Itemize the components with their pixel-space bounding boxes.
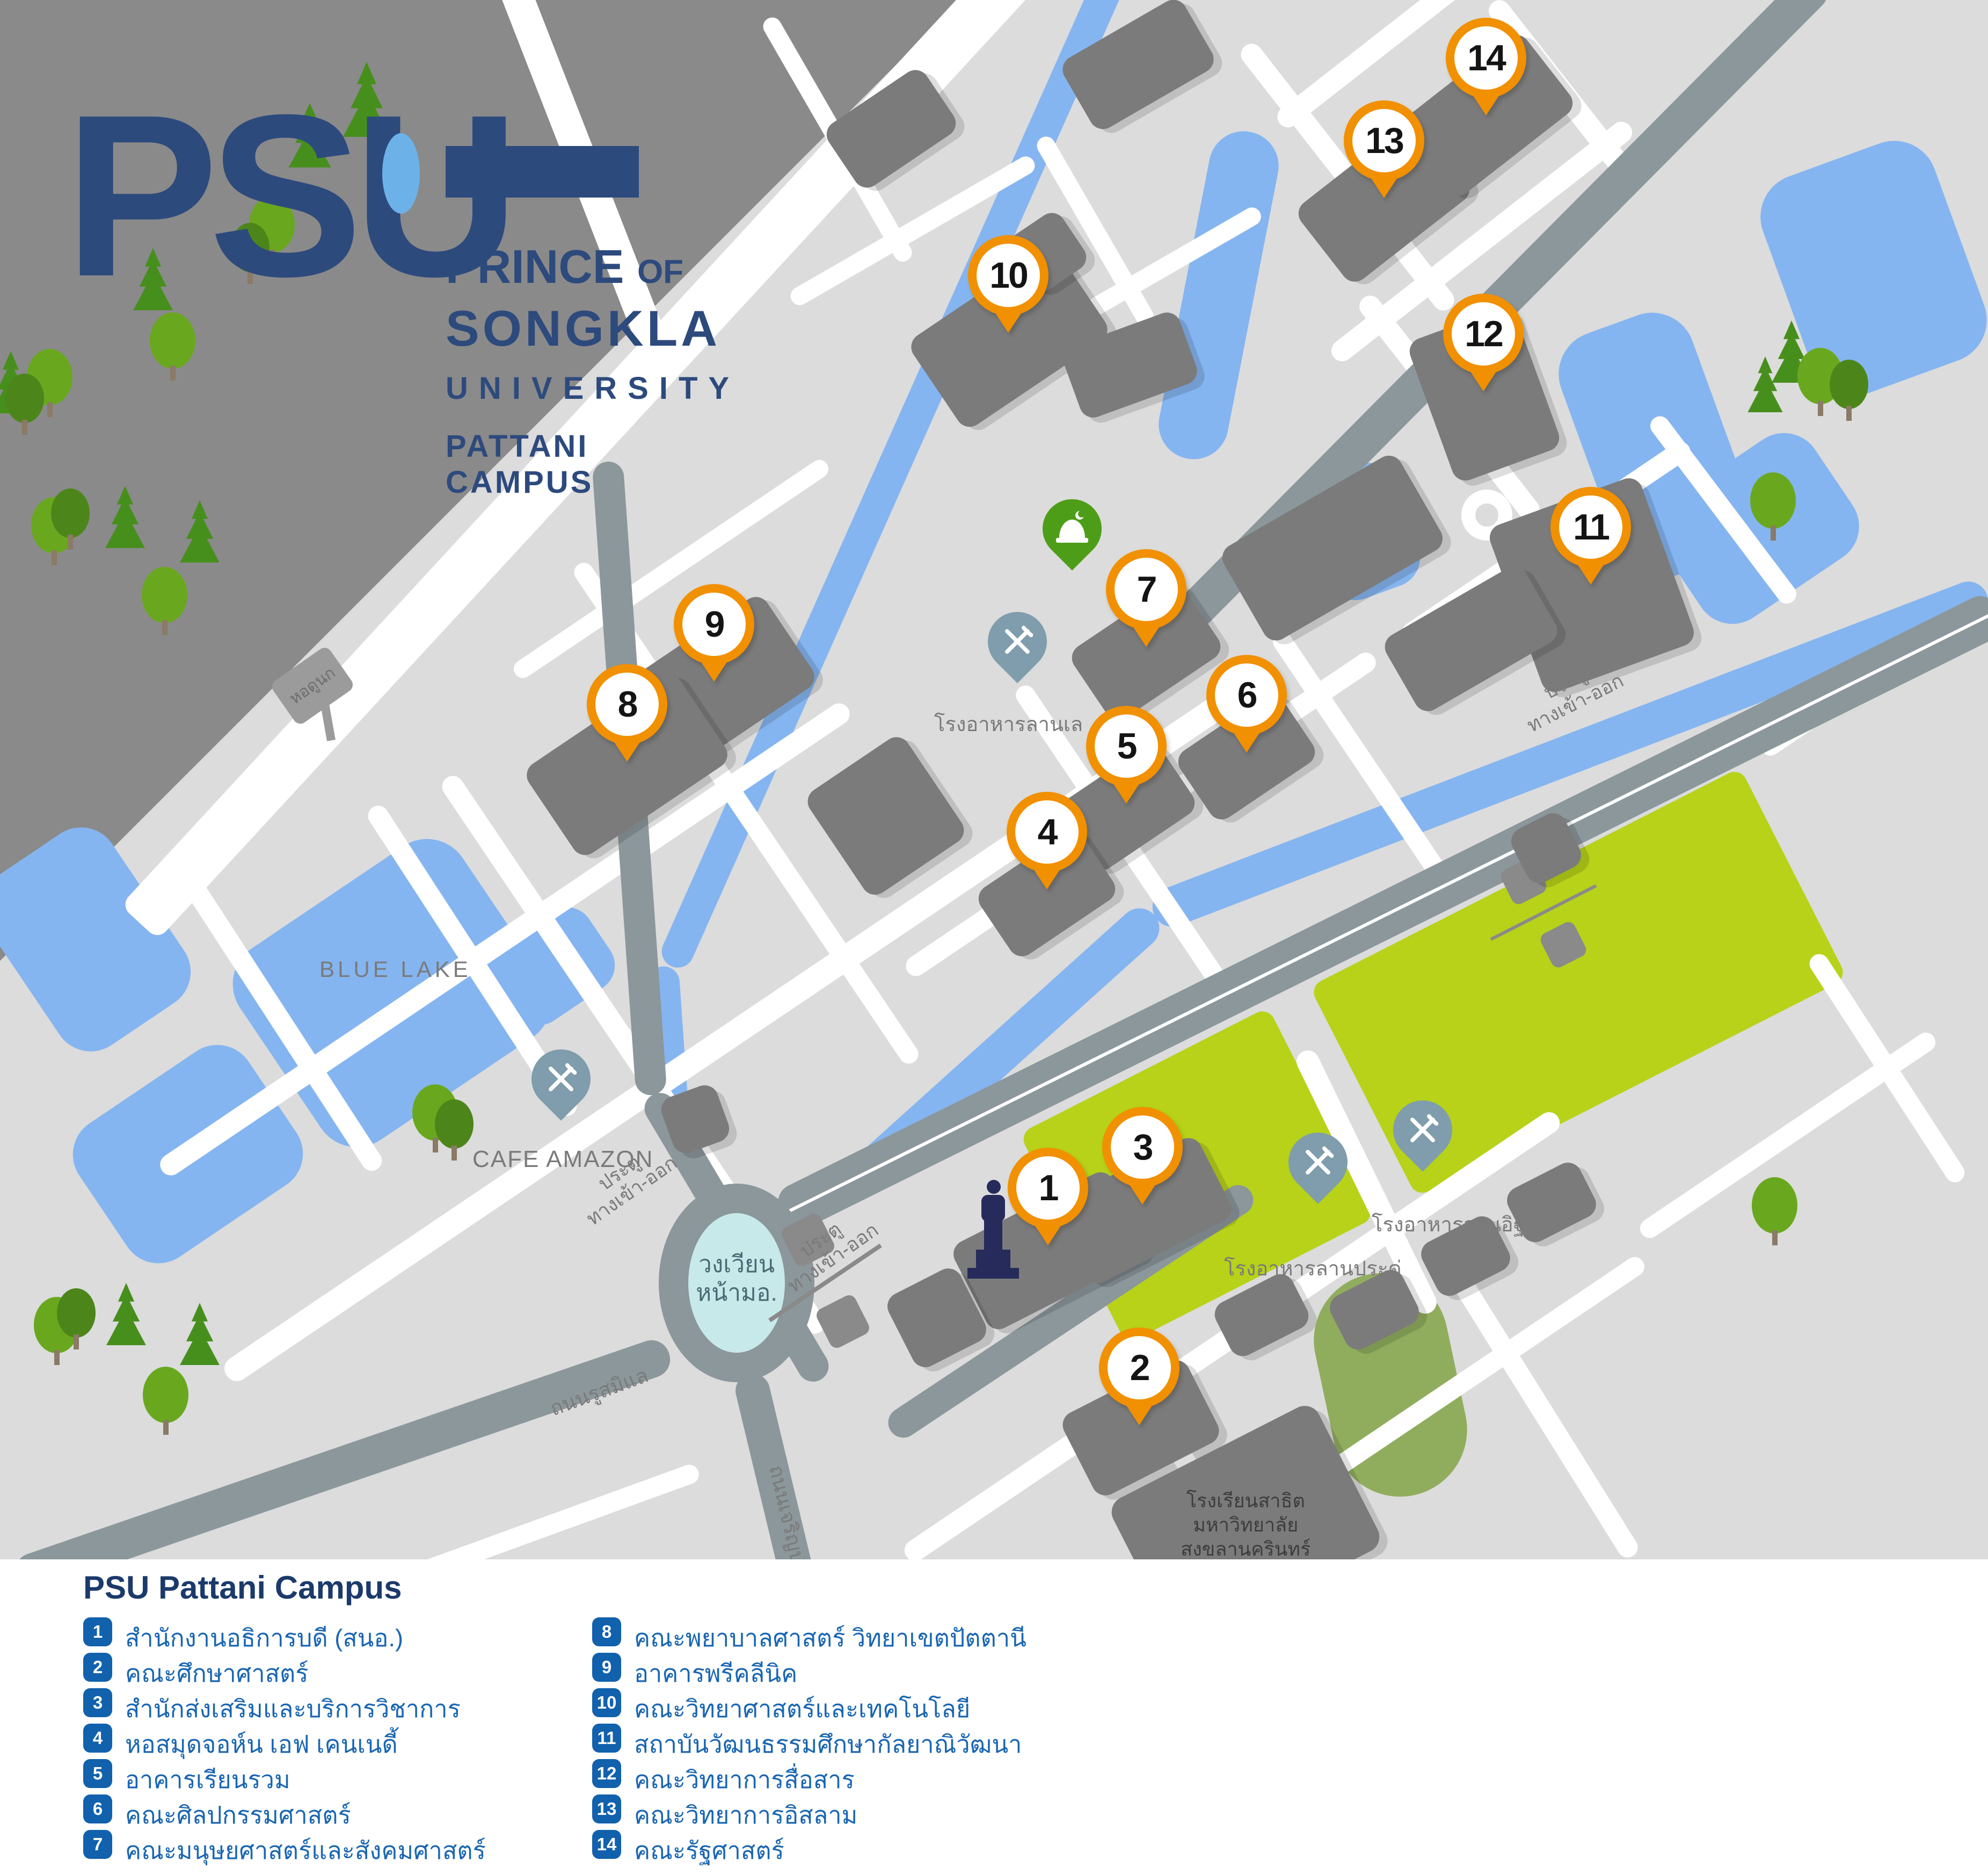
map-marker: 6 [1206, 655, 1287, 760]
legend-item-label: อาคารเรียนรวม [125, 1760, 290, 1799]
legend-item-label: คณะมนุษยศาสตร์และสังคมศาสตร์ [125, 1831, 486, 1870]
legend-item-number: 2 [83, 1653, 112, 1682]
map-marker: 10 [968, 235, 1048, 340]
legend-item-label: สำนักส่งเสริมและบริการวิชาการ [125, 1689, 461, 1728]
marker-circle: 5 [1086, 706, 1167, 786]
marker-circle: 14 [1446, 18, 1526, 98]
legend-item-label: อาคารพรีคลีนิค [634, 1654, 797, 1692]
legend-item-label: คณะศึกษาศาสตร์ [125, 1654, 308, 1692]
legend-item-number: 9 [592, 1653, 621, 1682]
marker-number: 14 [1467, 37, 1505, 79]
legend-item-number: 6 [83, 1794, 112, 1823]
map-marker: 11 [1550, 487, 1631, 592]
legend-item-label: สถาบันวัฒนธรรมศึกษากัลยาณิวัฒนา [634, 1725, 1022, 1763]
marker-number: 1 [1039, 1167, 1058, 1209]
marker-circle: 9 [674, 584, 754, 665]
legend-item-label: คณะวิทยาการอิสลาม [634, 1796, 857, 1834]
marker-circle: 2 [1099, 1327, 1179, 1408]
marker-circle: 13 [1344, 100, 1424, 181]
marker-number: 6 [1237, 674, 1256, 716]
legend-item-label: หอสมุดจอห์น เอฟ เคนเนดี้ [125, 1725, 398, 1763]
marker-number: 4 [1038, 811, 1057, 853]
marker-circle: 10 [968, 235, 1048, 316]
legend-item-number: 4 [83, 1724, 112, 1753]
marker-number: 11 [1573, 506, 1608, 548]
marker-circle: 1 [1008, 1148, 1088, 1228]
marker-number: 9 [705, 603, 724, 645]
marker-number: 7 [1137, 568, 1156, 610]
legend-item-number: 8 [592, 1617, 621, 1646]
legend-item-label: คณะรัฐศาสตร์ [634, 1831, 784, 1870]
marker-circle: 7 [1106, 549, 1186, 630]
campus-map: โรงเรียนสาธิต มหาวิทยาลัย สงขลานครินทร์ … [0, 0, 1988, 1559]
legend-title: PSU Pattani Campus [83, 1569, 402, 1606]
map-marker: 1 [1008, 1148, 1088, 1253]
map-marker: 5 [1086, 706, 1167, 811]
marker-number: 3 [1133, 1126, 1152, 1168]
marker-circle: 8 [587, 664, 667, 745]
legend-item-number: 10 [592, 1688, 621, 1717]
legend-item-label: คณะวิทยาศาสตร์และเทคโนโลยี [634, 1689, 970, 1728]
map-marker: 8 [587, 664, 667, 769]
marker-number: 5 [1117, 725, 1136, 767]
marker-circle: 6 [1206, 655, 1287, 735]
marker-number: 13 [1365, 120, 1403, 162]
map-marker: 14 [1446, 18, 1526, 123]
legend-item-label: สำนักงานอธิการบดี (สนอ.) [125, 1618, 403, 1657]
legend-item-number: 5 [83, 1759, 112, 1788]
map-marker: 13 [1344, 100, 1424, 206]
marker-number: 10 [989, 254, 1027, 296]
map-marker: 9 [674, 584, 754, 689]
map-marker: 2 [1099, 1327, 1179, 1433]
marker-circle: 11 [1550, 487, 1631, 567]
legend-item-number: 11 [592, 1724, 621, 1753]
legend-item-number: 3 [83, 1688, 112, 1717]
marker-circle: 12 [1443, 294, 1524, 374]
legend-item-label: คณะศิลปกรรมศาสตร์ [125, 1796, 351, 1834]
legend-item-number: 12 [592, 1759, 621, 1788]
legend-item-number: 13 [592, 1794, 621, 1823]
legend-item-label: คณะวิทยาการสื่อสาร [634, 1760, 855, 1799]
marker-number: 8 [618, 683, 637, 725]
markers-layer: 1 2 3 4 5 6 7 8 9 10 11 12 13 14 [0, 0, 1988, 1559]
marker-circle: 3 [1102, 1107, 1183, 1187]
marker-number: 12 [1465, 313, 1502, 355]
legend-item-label: คณะพยาบาลศาสตร์ วิทยาเขตปัตตานี [634, 1618, 1026, 1657]
marker-circle: 4 [1007, 792, 1087, 872]
map-marker: 4 [1007, 792, 1087, 897]
map-marker: 7 [1106, 549, 1186, 654]
legend-item-number: 14 [592, 1830, 621, 1859]
marker-number: 2 [1130, 1347, 1149, 1389]
map-marker: 12 [1443, 294, 1524, 399]
map-marker: 3 [1102, 1107, 1183, 1212]
legend-item-number: 7 [83, 1830, 112, 1859]
legend-panel: PSU Pattani Campus 1 สำนักงานอธิการบดี (… [0, 1559, 1988, 1875]
legend-item-number: 1 [83, 1617, 112, 1646]
